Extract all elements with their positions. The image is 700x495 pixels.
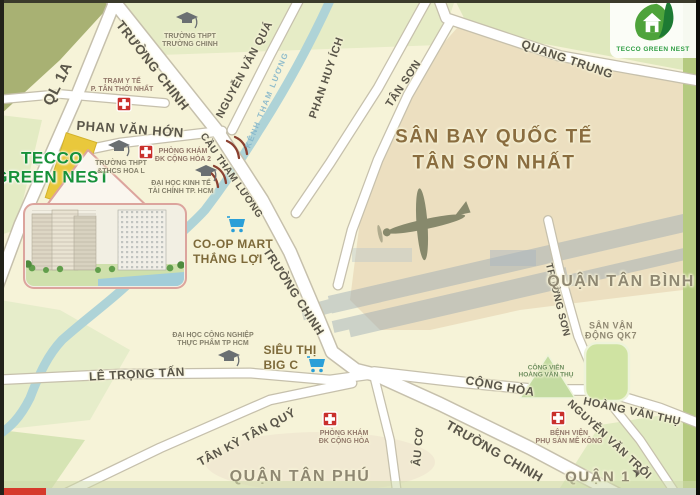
map-labels: QL 1A TRƯỜNG CHINH NGUYỄN VĂN QUÁ PHAN H…: [0, 0, 700, 495]
poi-thpt-truong-chinh: TRƯỜNG THPTTRƯỜNG CHINH: [162, 33, 218, 49]
poi-big-c: SIÊU THỊBIG C: [263, 343, 316, 373]
tecco-logo: TECCO GREEN NEST: [610, 0, 696, 58]
road-label-au-co: ÂU CƠ: [411, 427, 427, 467]
road-label-tan-ky-tan-quy: TÂN KỲ TÂN QUÝ: [196, 406, 299, 469]
road-label-le-trong-tan: LÊ TRỌNG TẤN: [89, 366, 186, 385]
poi-dai-hoc-kinh-te: ĐẠI HỌC KINH TẾTÀI CHÍNH TP. HCM: [148, 180, 213, 196]
project-name-line1: TECCO: [0, 149, 110, 168]
road-label-phan-van-hon: PHAN VĂN HỚN: [76, 119, 184, 141]
frame-edge-left: [0, 0, 4, 495]
project-name-label: TECCO GREEN NEST: [0, 149, 110, 186]
road-label-quang-trung: QUANG TRUNG: [519, 38, 614, 82]
airport-label-line1: SÂN BAY QUỐC TẾ: [395, 124, 593, 150]
project-name-line2: GREEN NEST: [0, 168, 110, 187]
poi-dai-hoc-cong-nghiep: ĐẠI HỌC CÔNG NGHIỆPTHỰC PHẨM TP HCM: [172, 332, 253, 348]
airport-label-line2: TÂN SƠN NHẤT: [395, 150, 593, 176]
poi-phong-kham-cong-hoa: PHÒNG KHÁMĐK CỘNG HÒA: [319, 430, 370, 446]
road-label-phan-huy-ich: PHAN HUY ÍCH: [307, 36, 347, 121]
tecco-logo-text: TECCO GREEN NEST: [610, 46, 696, 53]
poi-thpt-hoa-lu: TRƯỜNG THPT&THCS HOA L: [95, 160, 147, 176]
poi-coop-mart: CO-OP MARTTHẮNG LỢI: [193, 237, 273, 267]
road-label-truong-chinh-bottom: TRƯỜNG CHINH: [443, 418, 545, 486]
map-frame: QL 1A TRƯỜNG CHINH NGUYỄN VĂN QUÁ PHAN H…: [0, 0, 700, 495]
frame-edge-right: [696, 0, 700, 495]
road-label-ql1a: QL 1A: [40, 59, 76, 108]
poi-phong-kham-cong-hoa-2: PHÒNG KHÁMĐK CỘNG HÒA 2: [155, 148, 211, 164]
poi-cong-vien-hoang-van-thu: CÔNG VIÊNHOÀNG VĂN THỤ: [519, 365, 574, 380]
poi-san-van-dong-qk7: SÂN VẬNĐỘNG QK7: [585, 321, 637, 342]
tecco-logo-leaf-icon: [625, 1, 681, 45]
road-label-cau-tham-luong: CẦU THAM LƯƠNG: [197, 131, 264, 220]
timeline-band: [0, 481, 700, 488]
frame-edge-top: [0, 0, 700, 3]
airport-label: SÂN BAY QUỐC TẾ TÂN SƠN NHẤT: [395, 124, 593, 175]
district-label-tan-binh: QUẬN TÂN BÌNH: [547, 273, 695, 291]
road-label-tan-son: TÂN SƠN: [384, 58, 425, 110]
video-progress-bar[interactable]: [0, 488, 700, 495]
poi-benh-vien-me-kong: BỆNH VIỆNPHỤ SẢN MÊ KÔNG: [536, 430, 603, 446]
video-progress-played[interactable]: [0, 488, 46, 495]
poi-tram-y-te: TRẠM Y TẾP. TÂN THỚI NHẤT: [91, 78, 154, 94]
